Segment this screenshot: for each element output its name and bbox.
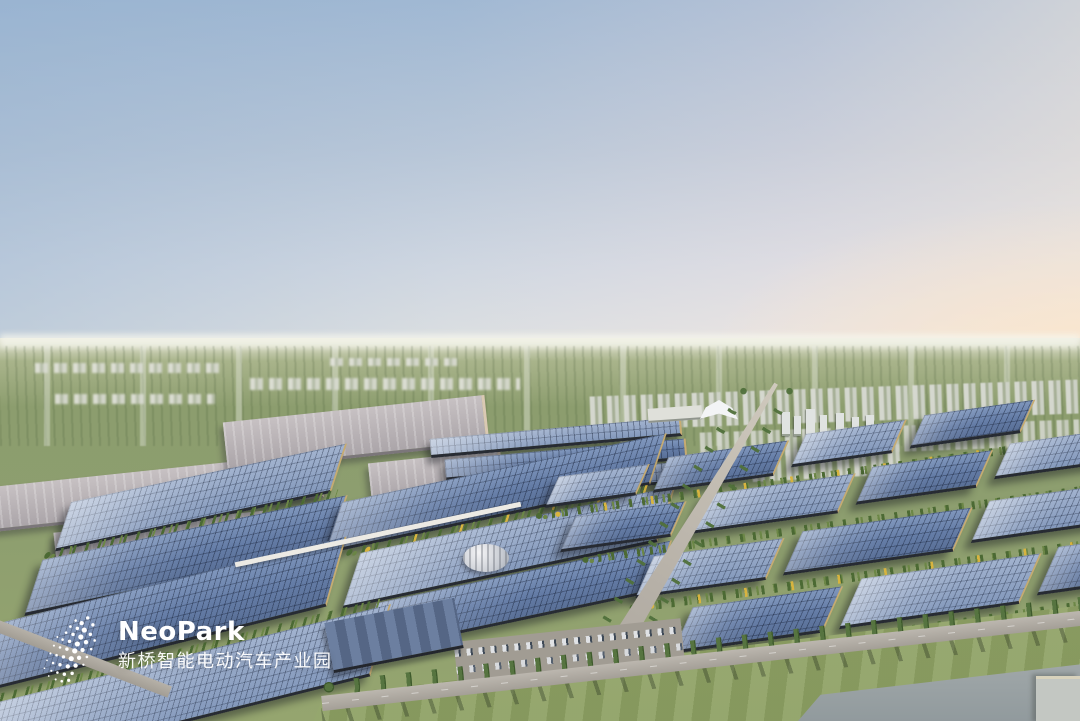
warehouse-solar-roof bbox=[994, 428, 1080, 479]
distant-town bbox=[55, 394, 215, 404]
distant-town bbox=[250, 378, 520, 390]
residential-tower bbox=[782, 412, 790, 436]
warehouse-solar-roof bbox=[1037, 526, 1080, 596]
brand-wordmark: NeoPark bbox=[118, 618, 333, 646]
distant-town bbox=[35, 363, 225, 373]
neopark-logo-dot-mark bbox=[34, 608, 112, 692]
dusk-sky bbox=[0, 0, 1080, 352]
neopark-logo: NeoPark 新桥智能电动汽车产业园 bbox=[34, 608, 333, 692]
corner-building-roof bbox=[1036, 676, 1080, 721]
dome-pavilion bbox=[463, 544, 509, 572]
warehouse-solar-roof bbox=[971, 483, 1080, 543]
logo-text-block: NeoPark 新桥智能电动汽车产业园 bbox=[118, 618, 333, 673]
aerial-render-scene: NeoPark 新桥智能电动汽车产业园 bbox=[0, 0, 1080, 721]
distant-town bbox=[330, 358, 460, 366]
brand-subtitle-chinese: 新桥智能电动汽车产业园 bbox=[118, 651, 333, 673]
